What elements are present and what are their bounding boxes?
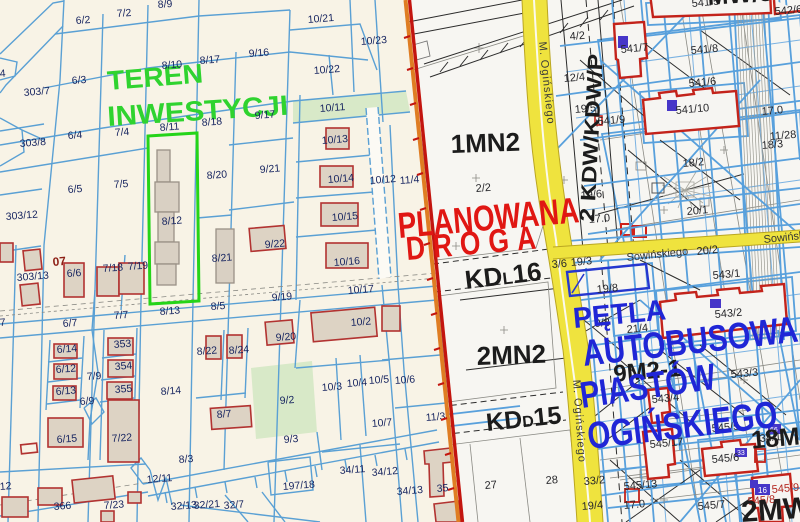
svg-text:20/2: 20/2 [696, 244, 719, 258]
svg-text:9/16: 9/16 [248, 46, 269, 60]
svg-text:10/15: 10/15 [331, 210, 358, 224]
svg-text:28: 28 [545, 474, 558, 487]
svg-text:4/2: 4/2 [569, 30, 585, 43]
svg-text:11/28: 11/28 [769, 129, 797, 143]
svg-text:545/7: 545/7 [697, 499, 725, 513]
svg-text:8/11: 8/11 [159, 120, 180, 134]
svg-text:541/7: 541/7 [620, 42, 648, 56]
svg-text:9/22: 9/22 [264, 237, 285, 251]
svg-text:543/1: 543/1 [712, 268, 740, 282]
svg-text:541/6: 541/6 [688, 76, 716, 90]
svg-text:2/2: 2/2 [475, 182, 491, 195]
svg-text:12/11: 12/11 [146, 472, 173, 486]
svg-text:6/5: 6/5 [67, 183, 83, 196]
svg-text:35: 35 [436, 482, 449, 495]
svg-text:10/4: 10/4 [346, 376, 367, 390]
svg-text:9/20: 9/20 [275, 330, 296, 344]
svg-text:9/3: 9/3 [283, 433, 299, 446]
svg-text:27: 27 [484, 479, 497, 492]
svg-text:303/12: 303/12 [5, 208, 38, 222]
svg-text:17.0: 17.0 [623, 498, 645, 512]
svg-text:366: 366 [53, 500, 72, 513]
svg-text:8/22: 8/22 [196, 344, 217, 358]
svg-text:7/7: 7/7 [113, 309, 129, 322]
svg-text:7/2: 7/2 [116, 7, 132, 20]
svg-text:11/4: 11/4 [399, 173, 420, 187]
svg-text:8/3: 8/3 [178, 453, 194, 466]
svg-text:6/15: 6/15 [56, 432, 77, 446]
svg-text:8/10: 8/10 [161, 58, 182, 72]
svg-text:543/3: 543/3 [730, 367, 758, 381]
svg-text:541/8: 541/8 [690, 43, 718, 57]
svg-text:354: 354 [114, 360, 133, 373]
svg-text:17.0: 17.0 [761, 104, 783, 118]
svg-text:19/3: 19/3 [570, 255, 592, 269]
svg-text:10/11: 10/11 [319, 101, 346, 115]
svg-text:8/12: 8/12 [161, 214, 182, 228]
svg-text:545/6: 545/6 [711, 452, 739, 466]
svg-text:2MW: 2MW [740, 491, 800, 522]
svg-text:34/11: 34/11 [339, 463, 366, 477]
svg-text:8/7: 8/7 [216, 408, 232, 421]
svg-text:10/6: 10/6 [394, 373, 415, 387]
svg-text:19/4: 19/4 [581, 499, 603, 513]
svg-text:7/19: 7/19 [127, 259, 148, 273]
svg-text:8/17: 8/17 [199, 53, 220, 67]
svg-text:8/20: 8/20 [206, 168, 227, 182]
svg-text:7/5: 7/5 [113, 178, 129, 191]
svg-text:10/5: 10/5 [368, 373, 389, 387]
svg-text:10/2: 10/2 [350, 315, 371, 329]
svg-text:07: 07 [52, 254, 67, 269]
svg-text:10/21: 10/21 [307, 12, 334, 26]
svg-text:8/21: 8/21 [211, 251, 232, 265]
svg-text:9/21: 9/21 [259, 162, 280, 176]
svg-text:6/2: 6/2 [75, 14, 91, 27]
svg-text:353: 353 [113, 338, 132, 351]
svg-text:10/22: 10/22 [313, 63, 340, 77]
svg-text:10/23: 10/23 [360, 34, 387, 48]
svg-text:20/1: 20/1 [686, 204, 708, 218]
svg-text:34/13: 34/13 [396, 484, 423, 498]
svg-text:1MN2: 1MN2 [450, 127, 520, 159]
svg-text:6/12: 6/12 [55, 362, 76, 376]
svg-text:6/9: 6/9 [79, 395, 95, 408]
svg-text:11/3: 11/3 [425, 410, 446, 424]
svg-text:8/14: 8/14 [160, 384, 181, 398]
svg-text:32/21: 32/21 [193, 498, 220, 512]
svg-text:9/2: 9/2 [279, 394, 295, 407]
svg-text:7/9: 7/9 [86, 370, 102, 383]
svg-text:6/14: 6/14 [56, 342, 77, 356]
svg-text:8/13: 8/13 [159, 304, 180, 318]
svg-text:6/4: 6/4 [67, 129, 83, 142]
svg-text:303/13: 303/13 [16, 269, 49, 283]
svg-text:197/18: 197/18 [282, 478, 315, 492]
svg-text:10/16: 10/16 [333, 255, 360, 269]
svg-text:10/17: 10/17 [347, 283, 374, 297]
svg-text:8/24: 8/24 [228, 343, 249, 357]
svg-text:2MN2: 2MN2 [476, 339, 546, 371]
svg-text:18/2: 18/2 [682, 156, 704, 170]
svg-text:7/23: 7/23 [103, 498, 124, 512]
svg-text:6/13: 6/13 [55, 384, 76, 398]
svg-text:542/6: 542/6 [774, 4, 800, 18]
svg-text:8/18: 8/18 [201, 115, 222, 129]
svg-text:6/7: 6/7 [62, 317, 78, 330]
svg-text:9/19: 9/19 [271, 290, 292, 304]
svg-text:7/18: 7/18 [102, 261, 123, 275]
svg-text:12/4: 12/4 [563, 71, 585, 85]
svg-text:9/17: 9/17 [254, 108, 275, 122]
svg-text:33/2: 33/2 [583, 474, 605, 488]
svg-text:303/7: 303/7 [23, 85, 50, 99]
svg-text:6/3: 6/3 [71, 74, 87, 87]
svg-text:3/6: 3/6 [551, 258, 567, 271]
svg-text:10/3: 10/3 [321, 380, 342, 394]
svg-text:7/22: 7/22 [111, 431, 132, 445]
svg-text:6/6: 6/6 [66, 267, 82, 280]
svg-text:10/12: 10/12 [369, 173, 396, 187]
svg-text:7/4: 7/4 [114, 126, 130, 139]
svg-text:303/8: 303/8 [19, 136, 46, 150]
svg-text:8/9: 8/9 [157, 0, 173, 11]
svg-text:12: 12 [0, 480, 12, 493]
svg-text:19/8: 19/8 [596, 282, 618, 296]
svg-text:10/7: 10/7 [371, 416, 392, 430]
svg-text:32/7: 32/7 [223, 498, 244, 512]
svg-text:10/13: 10/13 [321, 133, 348, 147]
svg-text:355: 355 [114, 383, 133, 396]
svg-text:8/5: 8/5 [210, 300, 226, 313]
svg-text:10/14: 10/14 [327, 172, 354, 186]
svg-text:34/12: 34/12 [371, 465, 398, 479]
